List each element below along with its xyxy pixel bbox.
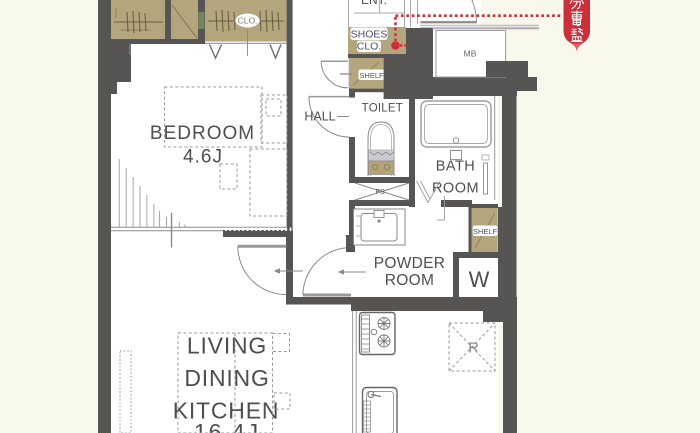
svg-text:POWDER: POWDER <box>374 255 446 272</box>
svg-text:BEDROOM: BEDROOM <box>150 123 255 144</box>
svg-text:TOILET: TOILET <box>362 103 403 115</box>
svg-text:R: R <box>468 341 478 357</box>
svg-text:SHOES: SHOES <box>351 29 388 41</box>
svg-text:16.4J: 16.4J <box>194 419 260 433</box>
svg-text:SHELF: SHELF <box>473 227 498 236</box>
svg-text:HALL: HALL <box>304 110 335 124</box>
svg-text:BATH: BATH <box>436 159 476 175</box>
svg-text:DINING: DINING <box>184 365 269 391</box>
svg-text:LIVING: LIVING <box>187 333 267 359</box>
svg-text:W: W <box>469 267 490 292</box>
svg-text:PS: PS <box>375 189 385 196</box>
svg-text:ROOM: ROOM <box>385 272 434 289</box>
svg-text:CLO.: CLO. <box>238 16 258 26</box>
svg-text:SHELF: SHELF <box>359 71 384 80</box>
svg-text:MB: MB <box>464 49 477 59</box>
svg-text:4.6J: 4.6J <box>183 147 223 168</box>
svg-text:CLO.: CLO. <box>357 41 382 53</box>
svg-text:ENT.: ENT. <box>361 0 387 7</box>
